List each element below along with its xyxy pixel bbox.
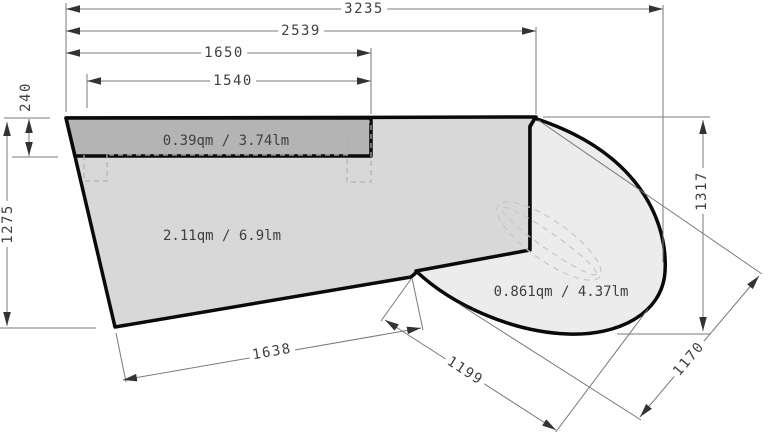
dim-label-1275: 1275: [1, 201, 15, 247]
area-label-main: 2.11qm / 6.9lm: [163, 229, 281, 243]
dim-label-3235: 3235: [341, 2, 387, 16]
dim-label-240: 240: [19, 79, 33, 115]
dim-label-1317: 1317: [695, 168, 709, 214]
ext-line-1638-left: [116, 333, 126, 382]
area-label-strip: 0.39qm / 3.74lm: [163, 134, 289, 148]
ext-line-1638-right: [412, 278, 423, 330]
ext-line-1199-left: [381, 279, 411, 321]
dim-label-1650: 1650: [201, 46, 247, 60]
drawing-canvas: 3235 2539 1650 1540 240 1275 1317 1638 1…: [0, 0, 768, 432]
dim-label-2539: 2539: [278, 24, 324, 38]
area-label-bay: 0.861qm / 4.37lm: [494, 285, 629, 299]
plan-drawing-svg: [0, 0, 768, 432]
dim-label-1540: 1540: [210, 74, 256, 88]
